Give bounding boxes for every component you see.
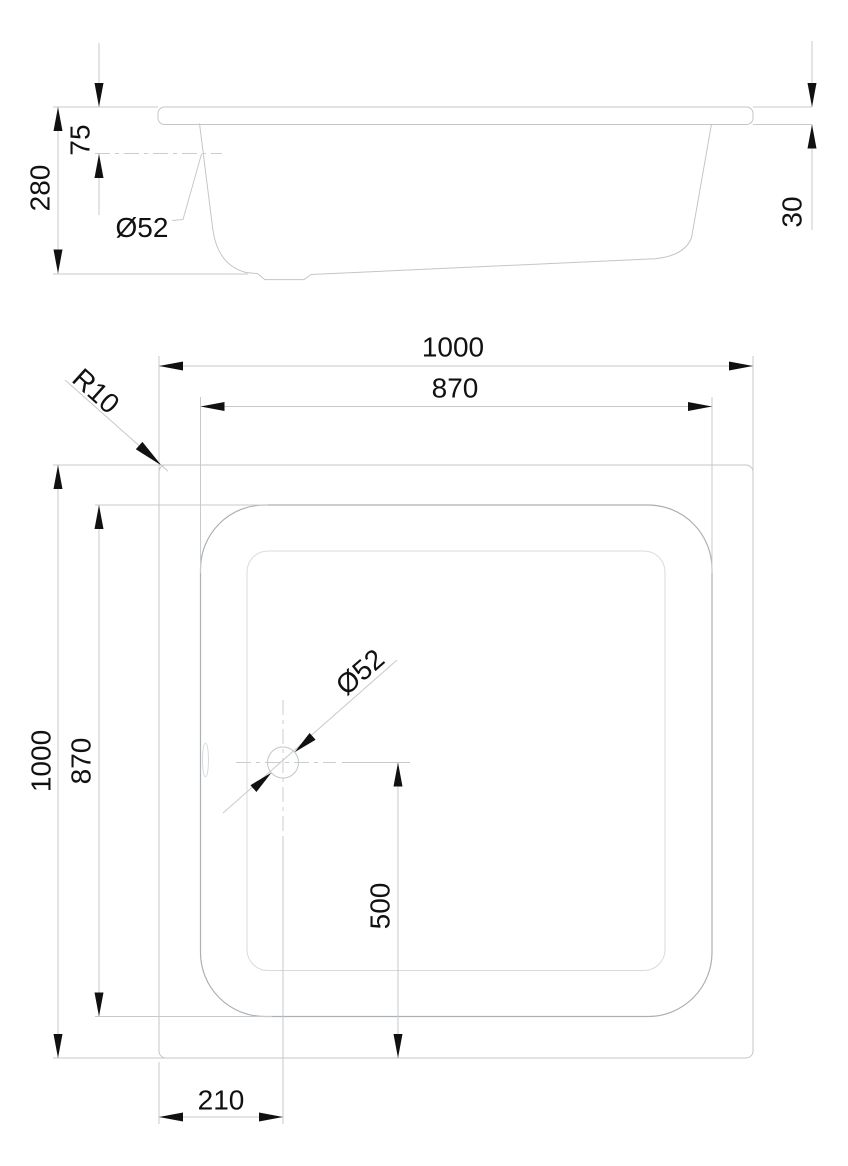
dim-waste-diameter-plan-label: Ø52 — [330, 643, 390, 701]
arrow-up-icon — [394, 763, 403, 787]
plan-inner-rim-edge — [201, 505, 713, 1017]
arrow-diagonal-icon — [136, 442, 162, 466]
dim-rim-height-label: 30 — [777, 196, 808, 227]
plan-floor-edge — [247, 551, 665, 971]
arrow-diagonal-icon — [295, 733, 316, 752]
technical-drawing-canvas: 280 75 Ø52 30 Ø52 — [0, 0, 848, 1166]
arrow-up-icon — [808, 125, 817, 149]
dim-inner-width-label: 870 — [432, 373, 479, 404]
dim-corner-radius-label: R10 — [67, 362, 126, 419]
arrow-up-icon — [54, 465, 63, 489]
plan-outer-edge — [159, 465, 753, 1058]
arrow-down-icon — [394, 1034, 403, 1058]
arrow-down-icon — [54, 250, 63, 274]
side-view: 280 75 Ø52 30 — [25, 41, 817, 280]
dim-outer-width-label: 1000 — [422, 332, 484, 363]
arrow-down-icon — [808, 83, 817, 107]
arrow-left-icon — [201, 402, 225, 411]
arrow-right-icon — [259, 1113, 283, 1122]
dim-inner-height-label: 870 — [66, 738, 97, 785]
side-tub-profile — [200, 124, 712, 280]
dim-waste-depth-label: 75 — [65, 124, 96, 155]
arrow-down-icon — [54, 1034, 63, 1058]
arrow-right-icon — [729, 362, 753, 371]
arrow-right-icon — [688, 402, 712, 411]
dim-waste-offset-bottom-label: 500 — [365, 883, 396, 930]
plan-view: Ø52 1000 870 R10 1000 870 — [26, 332, 754, 1125]
arrow-left-icon — [159, 1113, 183, 1122]
side-waste-leader — [172, 154, 202, 221]
arrow-up-icon — [95, 505, 104, 529]
dim-waste-offset-left-label: 210 — [198, 1085, 245, 1116]
dim-outer-height-label: 1000 — [26, 730, 57, 792]
arrow-up-icon — [95, 154, 104, 178]
arrow-diagonal-icon — [250, 773, 271, 792]
shower-tray-drawing: 280 75 Ø52 30 Ø52 — [0, 0, 848, 1166]
overflow-hole — [203, 743, 209, 777]
arrow-down-icon — [95, 83, 104, 107]
arrow-left-icon — [159, 362, 183, 371]
arrow-down-icon — [95, 993, 104, 1017]
arrow-up-icon — [54, 107, 63, 131]
side-rim-flange — [158, 107, 753, 125]
dim-waste-diameter-side-label: Ø52 — [116, 212, 169, 243]
dim-overall-height-label: 280 — [25, 165, 56, 212]
